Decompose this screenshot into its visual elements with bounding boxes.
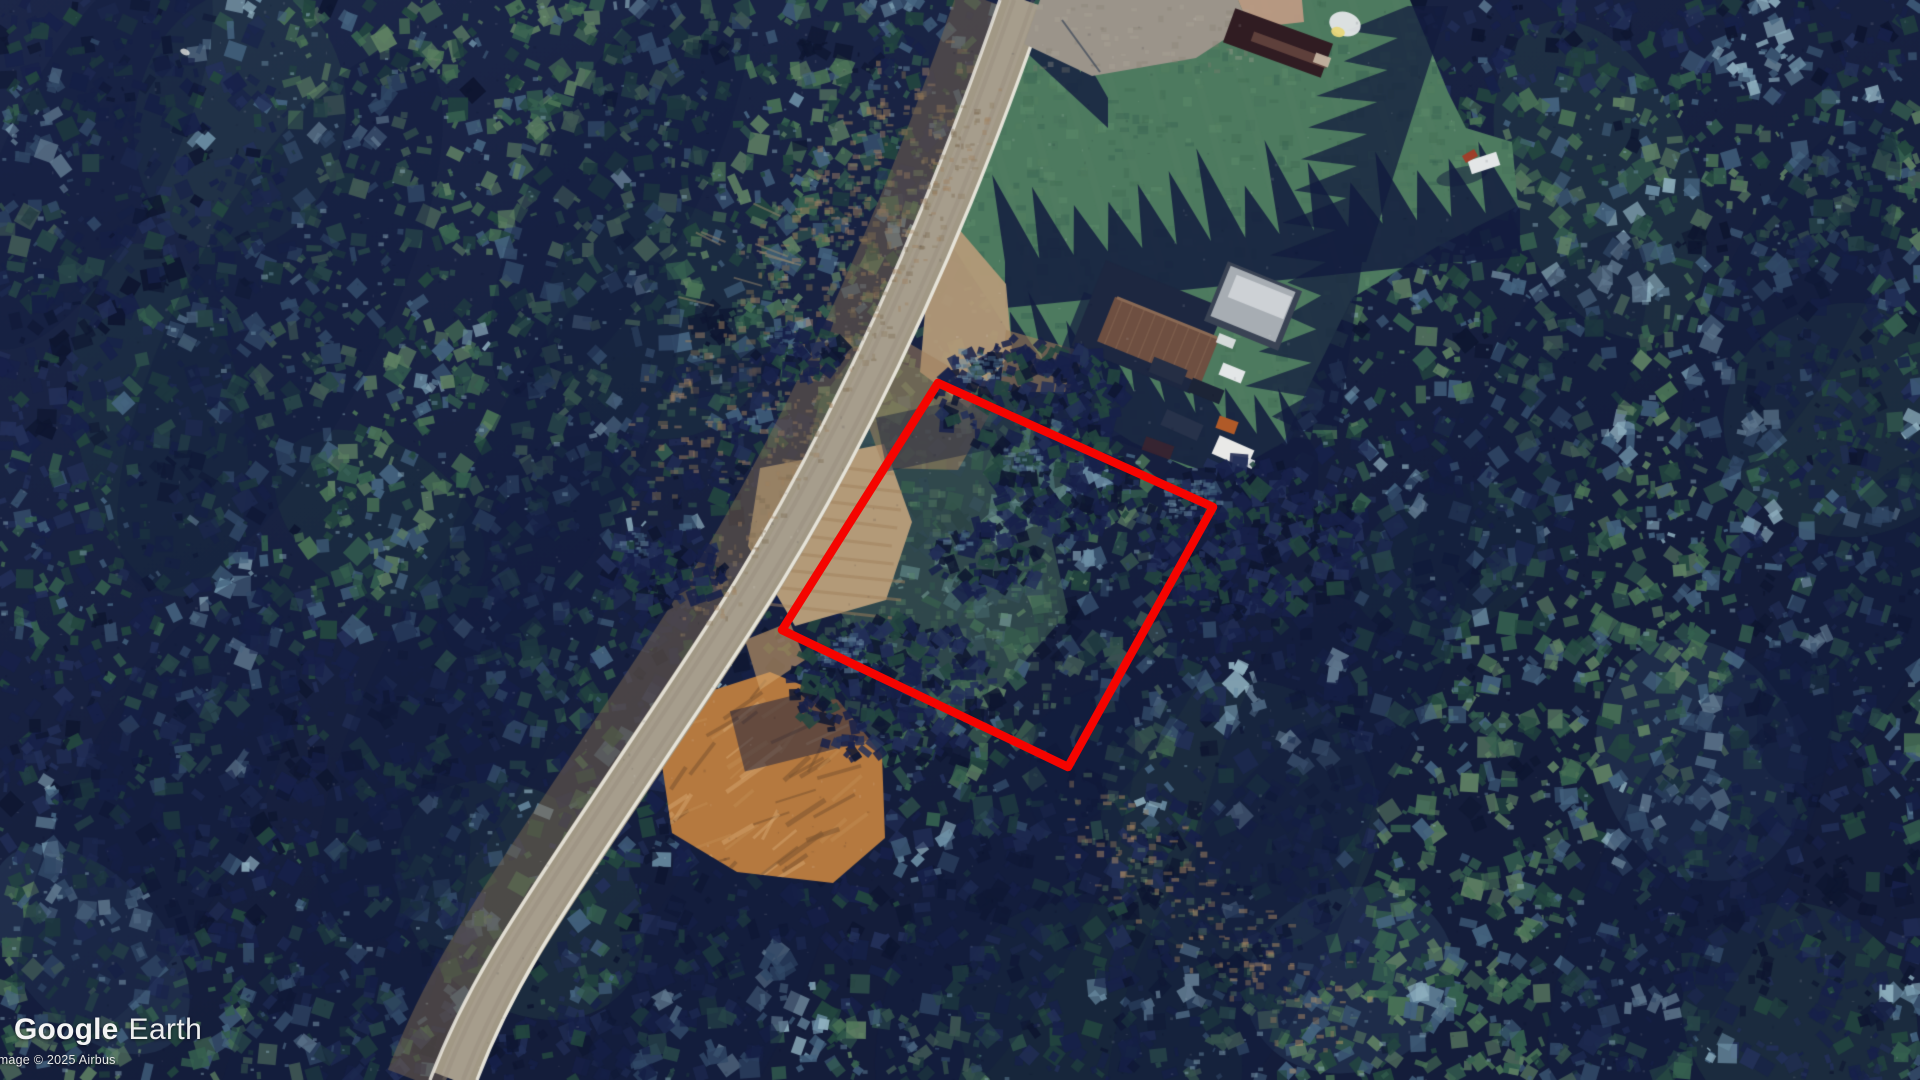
logo-earth: Earth xyxy=(129,1013,203,1046)
google-earth-watermark: GoogleEarth xyxy=(14,1015,202,1045)
imagery-attribution: Image © 2025 Airbus xyxy=(0,1053,116,1067)
logo-google: Google xyxy=(14,1013,119,1046)
google-earth-viewport: GoogleEarth Image © 2025 Airbus xyxy=(0,0,1920,1080)
satellite-map[interactable] xyxy=(0,0,1920,1080)
